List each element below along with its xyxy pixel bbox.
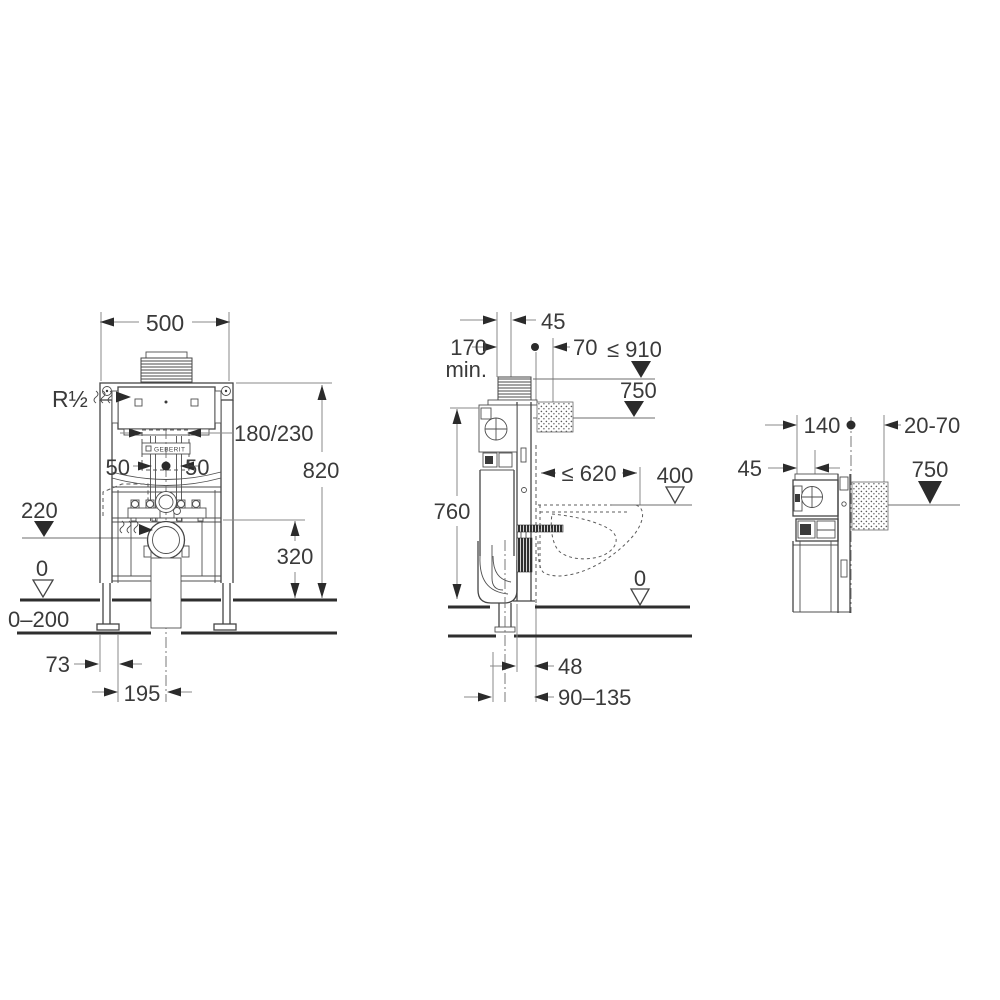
detail-dim-depth: 140 20-70: [765, 413, 960, 438]
level-0-label: 0: [36, 556, 48, 581]
front-dim-offsets: 50 50: [106, 455, 210, 480]
anchor-dot: [847, 421, 856, 430]
level-220-marker-icon: [34, 521, 54, 537]
side-dim-element-height: 760: [434, 408, 479, 599]
range-20-70-label: 20-70: [904, 413, 960, 438]
front-actuator-box: [141, 352, 192, 383]
detail-view: 140 20-70 45 750: [738, 413, 961, 613]
front-dim-outlet-height: 320: [223, 520, 313, 598]
dim-195-label: 195: [124, 681, 161, 706]
side-view: 45 170 min. 70 ≤ 910 750: [434, 309, 694, 710]
level-0-marker-icon: [33, 580, 53, 597]
side-floor-lines: [448, 607, 692, 636]
dim-180-230-label: 180/230: [234, 421, 314, 446]
side-wall-block: [537, 402, 573, 432]
dim-90-135-label: 90–135: [558, 685, 631, 710]
range-0-200-label: 0–200: [8, 607, 69, 632]
dim-620-label: ≤ 620: [562, 461, 617, 486]
side-dim-offset-70: 70: [531, 335, 597, 360]
level-910-marker-icon: [631, 361, 651, 378]
side-wc-bowl-outline: [538, 505, 643, 576]
side-drain-elbow: [478, 541, 517, 632]
level-750-marker-icon: [624, 401, 644, 417]
front-level-floor: 0 0–200: [8, 556, 69, 632]
front-drain-arrow: [120, 521, 153, 535]
level-400-label: 400: [657, 463, 694, 488]
side-cistern: [479, 405, 517, 594]
level-400-marker-icon: [666, 487, 684, 503]
detail-dim-45-label: 45: [738, 456, 762, 481]
drain-flow-icon: [120, 521, 138, 533]
dim-50-right-label: 50: [185, 455, 209, 480]
side-level-0-label: 0: [634, 566, 646, 591]
side-dim-bowl-depth: ≤ 620: [541, 461, 640, 505]
front-fixtures: [112, 492, 221, 523]
detail-rail: [838, 474, 850, 613]
dim-500-label: 500: [146, 310, 184, 336]
technical-drawing-canvas: 500: [0, 0, 1000, 1000]
dim-50-left-label: 50: [106, 455, 130, 480]
level-750-label: 750: [620, 378, 657, 403]
level-220-label: 220: [21, 498, 58, 523]
anchor-dot: [531, 343, 539, 351]
dim-45-label: 45: [541, 309, 565, 334]
dim-320-label: 320: [277, 544, 314, 569]
side-level-0-marker-icon: [631, 589, 649, 605]
detail-cistern: [793, 474, 851, 612]
dim-820-label: 820: [303, 458, 340, 483]
brand-logo-text: GEBERIT: [154, 447, 185, 454]
side-dim-plate-depth: 45: [460, 309, 565, 334]
anchor-dot: [162, 462, 171, 471]
side-dim-pipe-range: 90–135: [464, 652, 631, 710]
front-dim-leg-span: 195: [92, 681, 192, 706]
level-910-label: ≤ 910: [607, 337, 662, 362]
front-view: 500: [8, 310, 339, 706]
detail-level-750-marker-icon: [918, 481, 942, 504]
side-actuator-box: [488, 377, 537, 405]
front-service-box: [112, 387, 221, 435]
side-dim-min-depth: 170 min.: [445, 335, 497, 382]
front-drain-outlet: [144, 522, 189, 629]
detail-wall-block: [852, 482, 888, 530]
dim-70-label: 70: [573, 335, 597, 360]
side-level-floor: 0: [631, 566, 649, 605]
dim-170-suffix: min.: [445, 357, 487, 382]
dim-140-label: 140: [804, 413, 841, 438]
front-level-supply: 220: [21, 498, 58, 537]
dim-73-label: 73: [46, 652, 70, 677]
dim-760-label: 760: [434, 499, 471, 524]
detail-level-750-label: 750: [912, 457, 949, 482]
dim-48-label: 48: [558, 654, 582, 679]
water-connection-label: R½: [52, 386, 88, 412]
